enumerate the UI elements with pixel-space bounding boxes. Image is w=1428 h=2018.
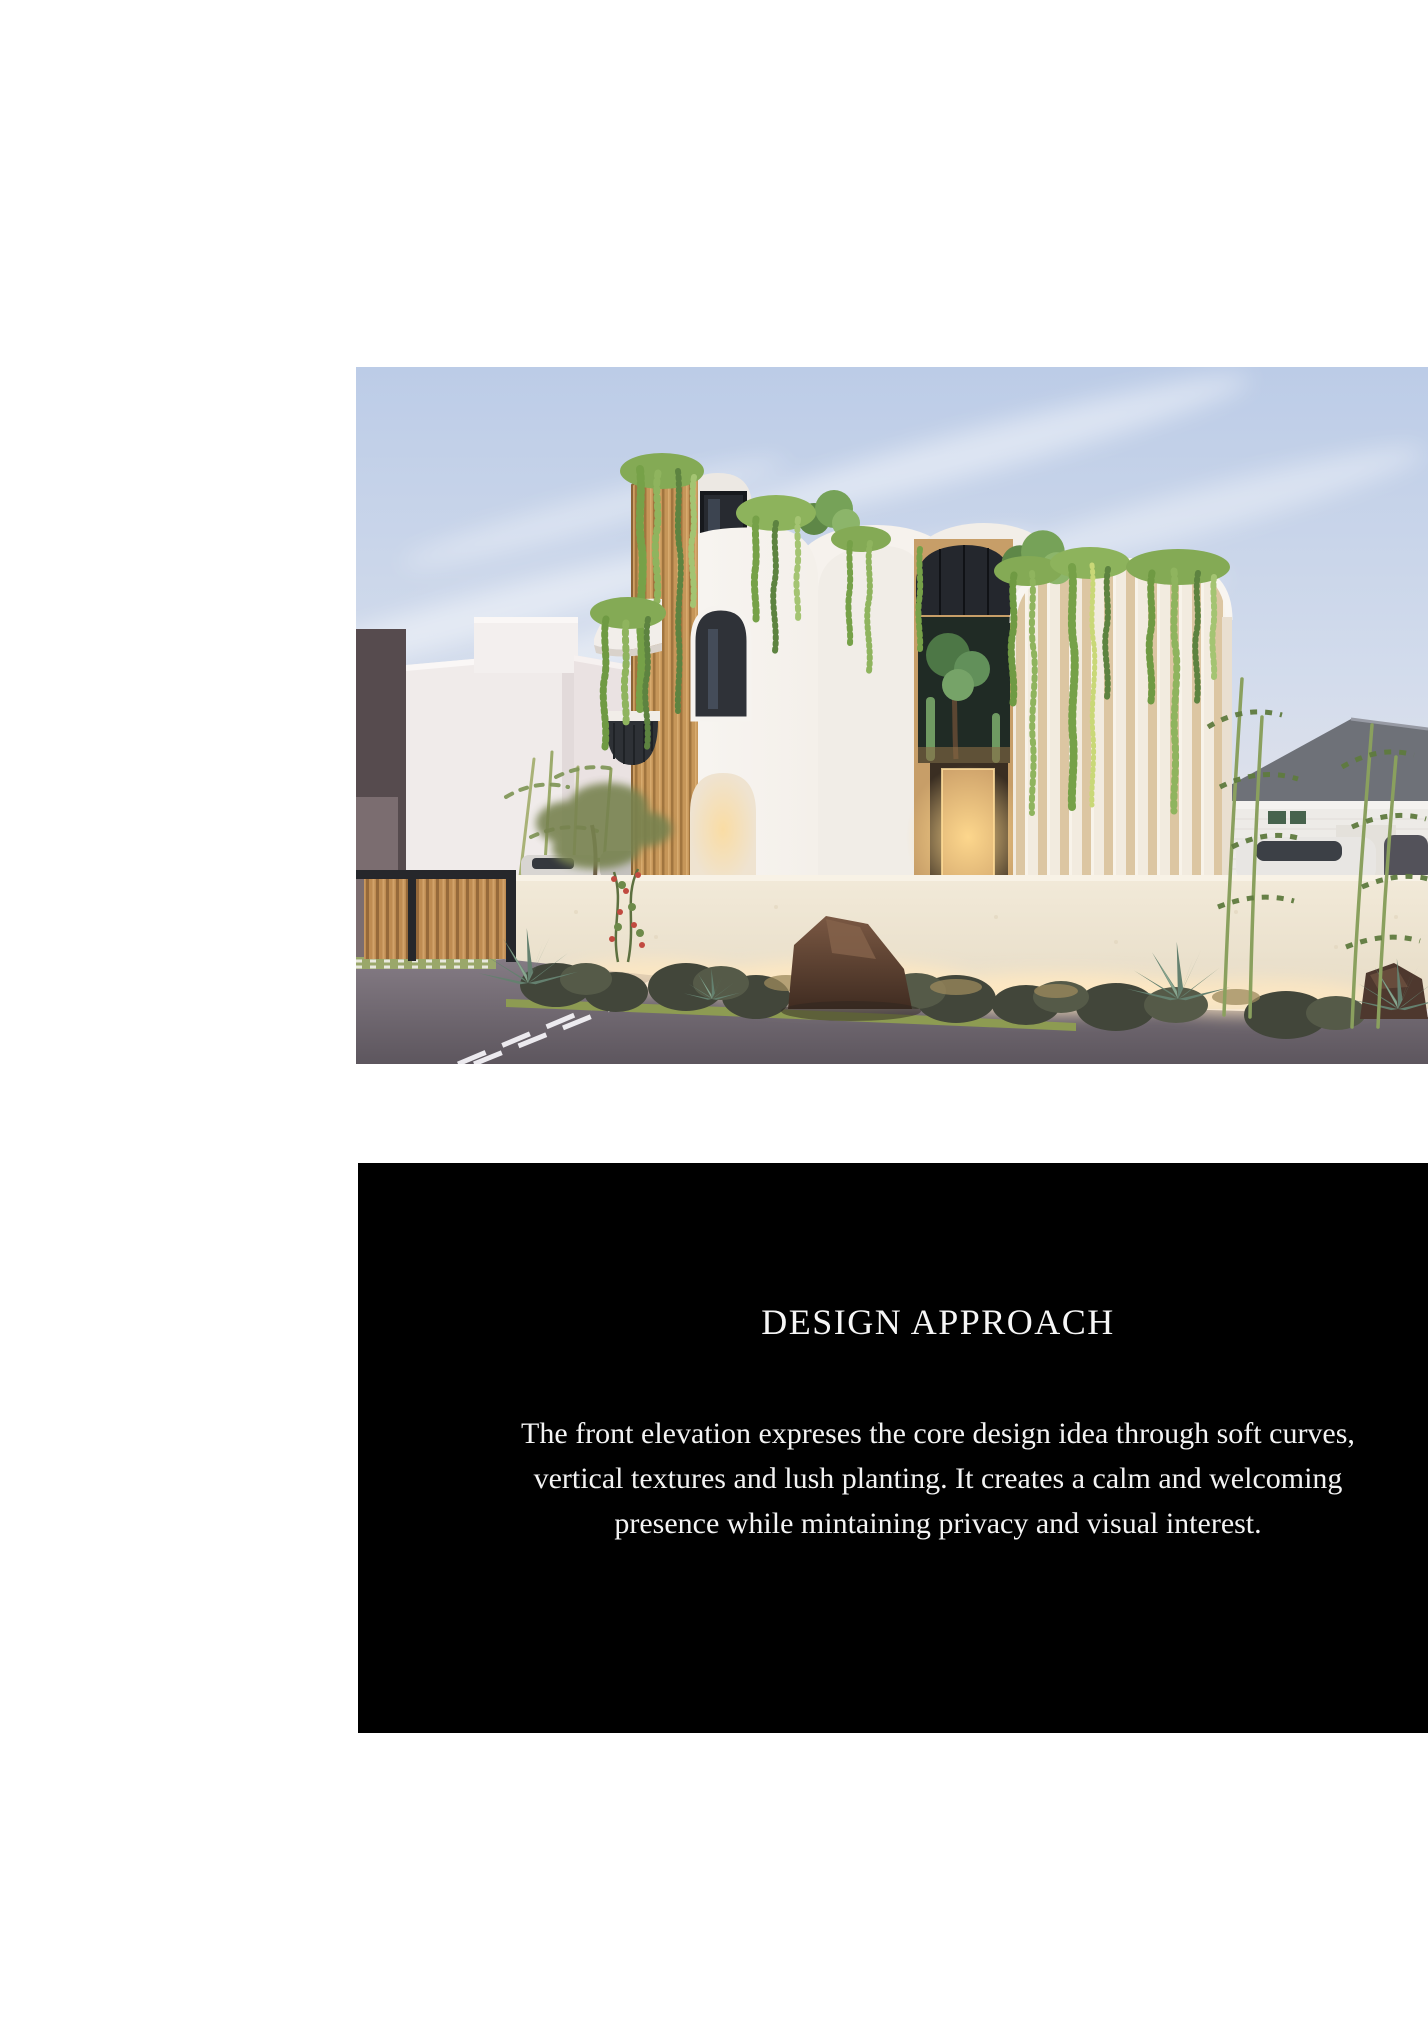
portfolio-page: DESIGN APPROACH The front elevation expr… — [0, 0, 1428, 2018]
section-title: DESIGN APPROACH — [358, 1301, 1428, 1343]
design-approach-panel: DESIGN APPROACH The front elevation expr… — [358, 1163, 1428, 1733]
entry-arch-niche — [690, 773, 756, 886]
paragraph-line: presence while mintaining privacy and vi… — [358, 1501, 1428, 1546]
curved-top-window — [916, 545, 1012, 615]
paragraph-line: The front elevation expreses the core de… — [358, 1411, 1428, 1456]
design-approach-content: DESIGN APPROACH The front elevation expr… — [358, 1163, 1428, 1546]
door-glass-mural — [918, 617, 1010, 763]
vines-entrance — [918, 549, 920, 649]
paragraph-line: vertical textures and lush planting. It … — [358, 1456, 1428, 1501]
arched-window — [693, 608, 749, 719]
entrance-gate — [356, 870, 516, 969]
section-paragraph: The front elevation expreses the core de… — [358, 1411, 1428, 1546]
front-elevation-render — [356, 367, 1428, 1064]
